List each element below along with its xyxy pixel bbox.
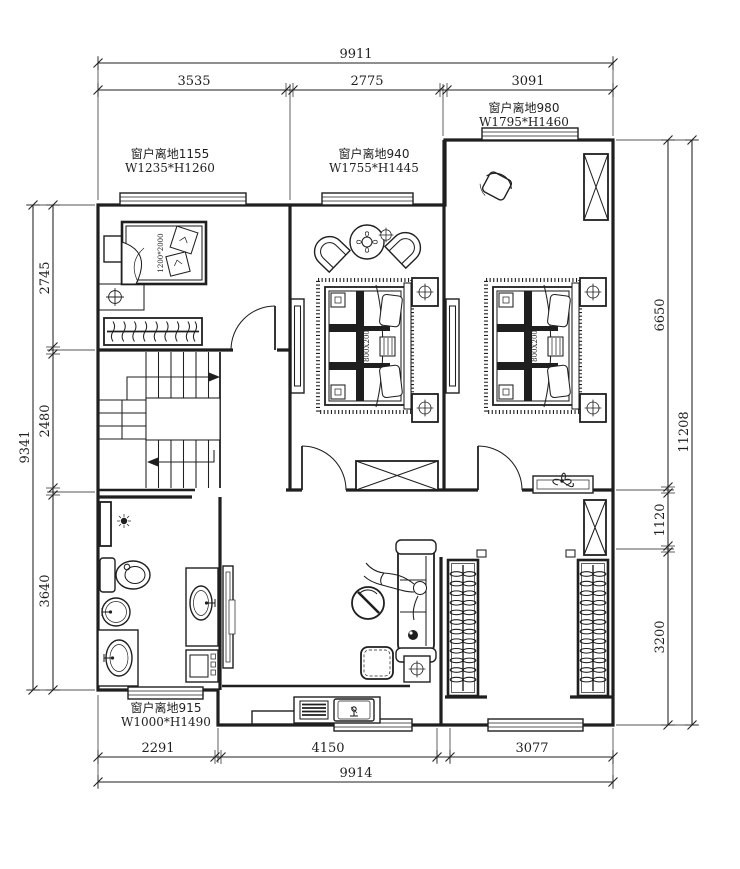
lamp-box [404, 656, 430, 682]
dim-top-seg3: 3091 [511, 74, 544, 89]
window-label-2-line2: W1755*H1445 [329, 161, 419, 175]
low-cabinet-icon [356, 461, 438, 490]
dim-right-seg2: 1120 [653, 503, 668, 536]
nightstand [104, 236, 122, 262]
window-label-1-line1: 窗户离地1155 [131, 146, 210, 161]
bathroom [98, 502, 218, 686]
window-label-4-line1: 窗户离地915 [131, 700, 202, 715]
balcony [252, 697, 380, 724]
bed-size-label: 1200*2000 [157, 233, 165, 272]
wardrobe-hangers-icon [448, 560, 478, 696]
vanity-icon [186, 568, 218, 646]
tv-icon [291, 299, 304, 393]
tv-icon [223, 566, 235, 668]
armchair-icon [385, 226, 427, 268]
desk-chair-icon [476, 168, 515, 205]
round-basin-icon [102, 598, 130, 626]
dim-top-seg2: 2775 [350, 74, 383, 89]
dressing-room [448, 500, 608, 696]
dim-right-seg3: 3200 [653, 620, 668, 653]
living-room [223, 540, 436, 682]
stool-icon [361, 647, 393, 679]
dim-bottom-overall: 9914 [339, 766, 372, 781]
shower-panel [100, 502, 111, 546]
bench [252, 711, 296, 724]
plant-shelf-icon [533, 473, 593, 493]
door-icon [231, 306, 275, 350]
bedroom-right: 1800X2000 [446, 154, 608, 493]
clothes-hook-icon [566, 550, 575, 557]
dim-top-overall: 9911 [339, 47, 372, 62]
dim-top-seg1: 3535 [177, 74, 210, 89]
bed-size-label: 1800X2000 [363, 326, 371, 367]
door-icon [302, 446, 346, 490]
cabinet-icon [584, 154, 608, 220]
dim-bottom-seg3: 3077 [515, 741, 548, 756]
dim-bottom-seg1: 2291 [141, 741, 174, 756]
floor-plan-canvas: 1200*2000 [0, 0, 740, 869]
dim-right-overall: 11208 [677, 411, 692, 452]
window-label-4-line2: W1000*H1490 [121, 715, 211, 729]
dim-right-seg1: 6650 [653, 298, 668, 331]
dim-left-seg2: 2480 [38, 404, 53, 437]
clothes-hook-icon [477, 550, 486, 557]
stair-down-arrow [158, 450, 214, 462]
staircase [98, 352, 220, 488]
tv-icon [446, 299, 459, 393]
window-label-1-line2: W1235*H1260 [125, 161, 215, 175]
wardrobe-icon [104, 318, 202, 345]
door-icon [478, 446, 522, 490]
sink-counter-icon [98, 630, 138, 686]
bed-size-label: 1800X2000 [531, 326, 539, 367]
dim-left-seg1: 2745 [38, 261, 53, 294]
dim-left-seg3: 3640 [38, 574, 53, 607]
window-icon [322, 193, 413, 205]
round-table-icon [350, 225, 384, 259]
window-label-3-line1: 窗户离地980 [489, 100, 560, 115]
window-icon [128, 687, 203, 699]
stair-up-arrow [127, 377, 209, 400]
wardrobe-hangers-icon [578, 560, 608, 696]
toilet-icon [100, 558, 150, 592]
window-icon [488, 719, 583, 731]
laundry-sink-icon [294, 697, 380, 723]
washing-machine-icon [186, 650, 218, 682]
dim-left-overall: 9341 [18, 430, 33, 463]
ceiling-lamp-icon [106, 288, 124, 306]
window-label-3-line2: W1795*H1460 [479, 115, 569, 129]
floor-plan: 1200*2000 [0, 0, 740, 869]
bedroom-middle: 1800X2000 [291, 225, 438, 490]
round-table-icon [352, 587, 384, 619]
dim-bottom-seg2: 4150 [311, 741, 344, 756]
armchair-icon [308, 230, 350, 272]
shaft-column [584, 500, 606, 555]
window-icon [482, 128, 578, 140]
window-label-2-line1: 窗户离地940 [339, 146, 410, 161]
shower-head-icon [117, 514, 131, 528]
window-icon [120, 193, 246, 205]
bedroom-small: 1200*2000 [98, 222, 275, 350]
